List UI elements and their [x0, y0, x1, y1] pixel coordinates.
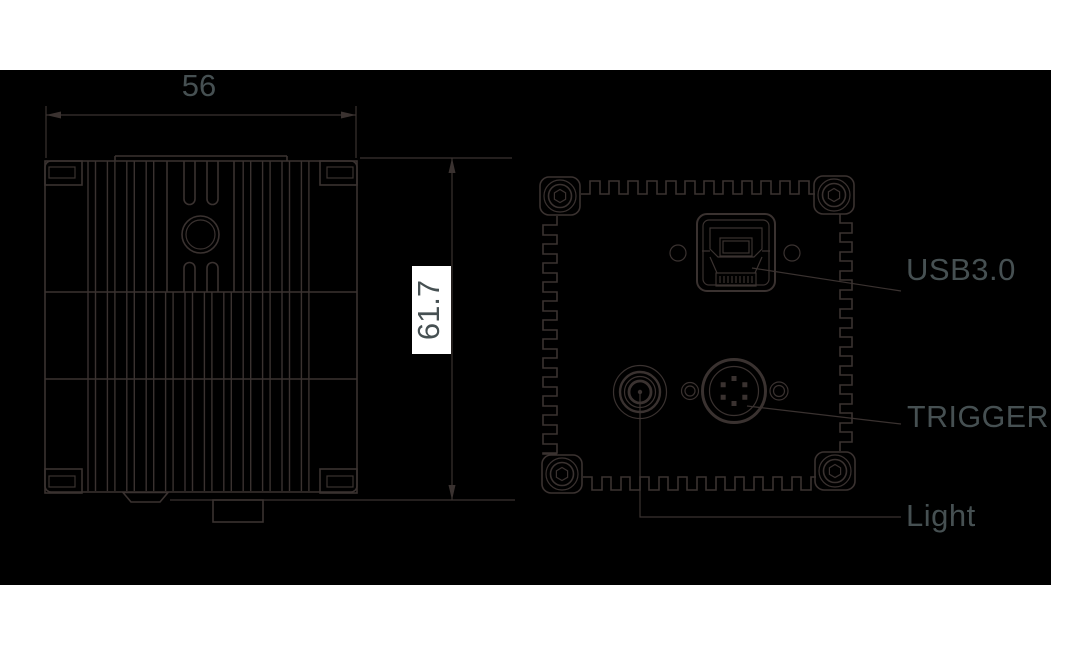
- usb-label: USB3.0: [906, 252, 1016, 287]
- drawing-background-panel: [0, 70, 1051, 585]
- drawing-canvas: 56 61.7: [0, 0, 1087, 653]
- trigger-pin: [721, 395, 726, 400]
- trigger-pin: [742, 395, 747, 400]
- trigger-pin: [742, 382, 747, 387]
- light-center-pin: [638, 390, 642, 394]
- trigger-pin: [732, 401, 737, 406]
- height-dimension-label: 61.7: [411, 280, 446, 340]
- trigger-label: TRIGGER: [907, 399, 1049, 434]
- width-dimension-label: 56: [182, 68, 216, 103]
- trigger-pin: [732, 376, 737, 381]
- light-label: Light: [906, 498, 976, 533]
- trigger-pin: [721, 382, 726, 387]
- camera-dimension-diagram: 56 61.7: [0, 0, 1087, 653]
